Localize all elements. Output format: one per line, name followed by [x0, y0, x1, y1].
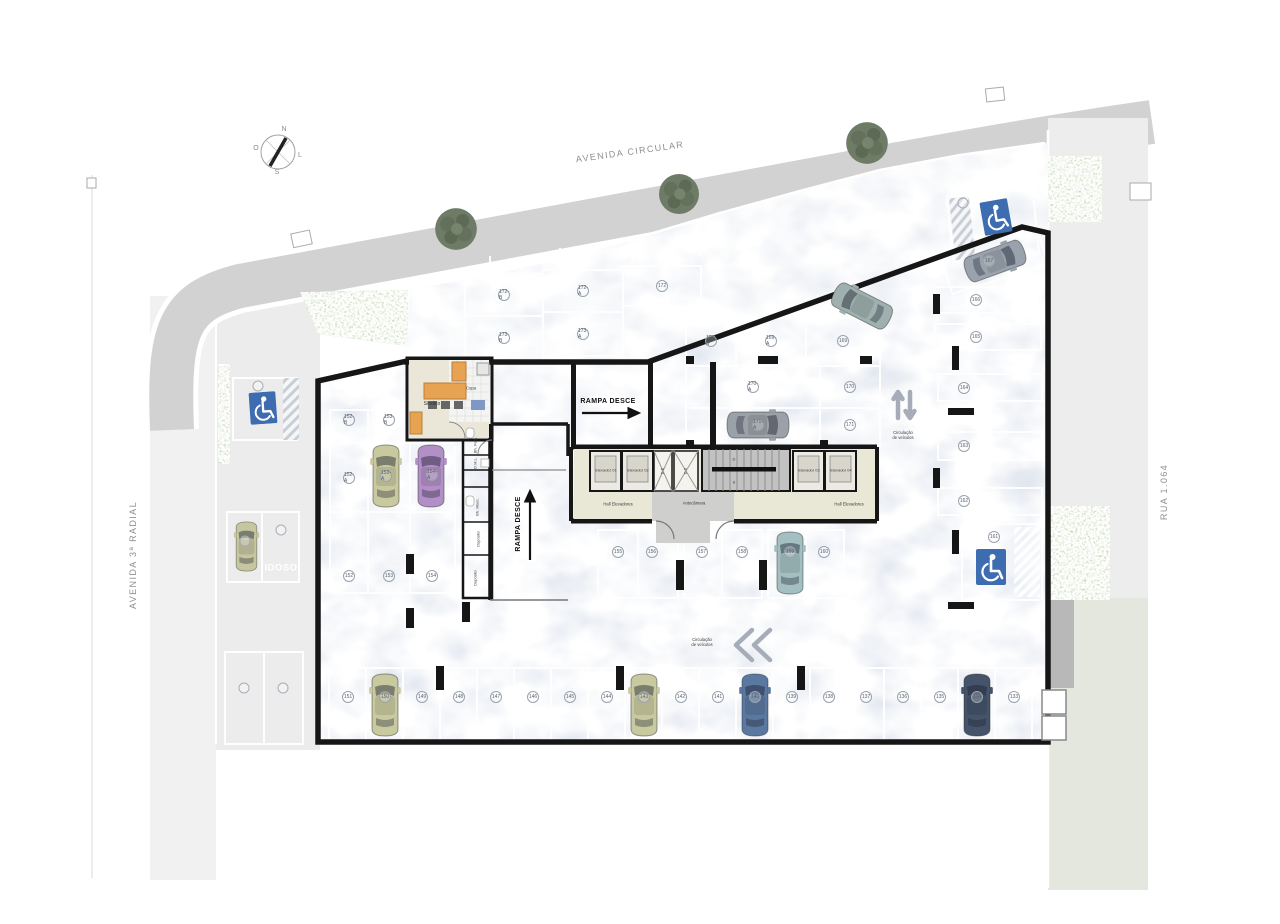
room-label-dml: D.M.L.: [474, 457, 479, 469]
spot-number: 146: [527, 691, 539, 703]
spot-number: 137: [860, 691, 872, 703]
spot-number: 154-A: [426, 469, 438, 481]
wheelchair-icon: [976, 549, 1006, 585]
site-plan-svg: [0, 0, 1280, 924]
spot-number: 169-A: [765, 335, 777, 347]
spot-number: 170-A: [747, 381, 759, 393]
idoso-label: IDOSO: [264, 564, 297, 575]
spot-number: 156: [646, 546, 658, 558]
room-label-sindico: Síndico: [424, 402, 441, 408]
hall-elevadores-label-1: Hall Elevadores: [603, 503, 632, 508]
spot-number: 135: [934, 691, 946, 703]
spot-number: 154: [426, 570, 438, 582]
room-label-copa: Copa: [466, 387, 476, 392]
elevator-02-label: Elevador 02: [627, 469, 648, 474]
spot-number: 162: [958, 495, 970, 507]
street-label-rua-1064: RUA 1.064: [1159, 464, 1169, 520]
spot-number: 163: [958, 440, 970, 452]
spot-number: 155: [612, 546, 624, 558]
room-label-deposito-2: Depósito: [474, 570, 479, 586]
room-label-bh-fem: Bh. Fem.: [474, 437, 479, 453]
spot-number: 170: [844, 381, 856, 393]
spot-number: 172: [656, 280, 668, 292]
elevator-03-label: Elevador 03: [798, 469, 819, 474]
room-label-deposito-1: Depósito: [477, 531, 482, 547]
antecamara-label: Antecâmara: [683, 502, 706, 507]
spot-number: 145: [564, 691, 576, 703]
compass-south: S: [275, 169, 280, 177]
spot-number: 153-A: [380, 470, 392, 482]
spot-marker: [239, 683, 250, 694]
room-label-bh-masc: Bh. Masc.: [476, 498, 481, 516]
spot-number: 157: [696, 546, 708, 558]
spot-number: 160: [818, 546, 830, 558]
spot-number: 147: [490, 691, 502, 703]
spot-number: 151: [342, 691, 354, 703]
spot-number: 150: [379, 691, 391, 703]
duct-ds-label: D.S: [684, 468, 689, 475]
compass-west: O: [253, 145, 258, 153]
spot-number: 172-B: [498, 289, 510, 301]
tree-icon: [435, 208, 477, 250]
spot-number: 161: [988, 531, 1000, 543]
spot-number: 136: [897, 691, 909, 703]
spot-number: 148: [453, 691, 465, 703]
spot-number: 164: [958, 382, 970, 394]
compass-north: N: [281, 126, 286, 134]
spot-number: 165: [970, 331, 982, 343]
spot-number: 167: [983, 255, 995, 267]
stair-up-marker: S: [733, 481, 736, 486]
ramp-down-label-1: RAMPA DESCE: [580, 398, 635, 406]
tree-icon: [659, 174, 699, 214]
spot-number: 158: [736, 546, 748, 558]
spot-marker: [278, 683, 289, 694]
right-street: [1048, 118, 1148, 890]
spot-number: 152-A: [343, 472, 355, 484]
spot-marker: [958, 198, 969, 209]
spot-number: 152: [343, 570, 355, 582]
circulation-label-right: Circulação de veículos: [892, 431, 913, 441]
wheelchair-icon: [979, 198, 1012, 236]
spot-number: 171: [844, 419, 856, 431]
spot-number: 142: [675, 691, 687, 703]
spot-number: 141: [712, 691, 724, 703]
spot-number: 140: [749, 691, 761, 703]
spot-number: 169: [837, 335, 849, 347]
spot-number: 134: [971, 691, 983, 703]
street-label-avenida-3-radial: AVENIDA 3ª RADIAL: [128, 501, 138, 609]
circulation-label-bottom: Circulação de veículos: [691, 638, 712, 648]
tree-icon: [846, 122, 888, 164]
spot-number: 153: [383, 570, 395, 582]
spot-marker: [240, 536, 251, 547]
spot-marker: [276, 525, 287, 536]
parking-floor-plan: AVENIDA CIRCULAR AVENIDA 3ª RADIAL RUA 1…: [0, 0, 1280, 924]
spot-number: 166: [970, 294, 982, 306]
spot-number: 143: [638, 691, 650, 703]
spot-number: 149: [416, 691, 428, 703]
elevator-01-label: Elevador 01: [595, 469, 616, 474]
spot-number: 159: [784, 546, 796, 558]
spot-number: 144: [601, 691, 613, 703]
spot-number: 173-B: [498, 332, 510, 344]
spot-number: 169-B: [705, 335, 717, 347]
spot-number: 171-A: [752, 419, 764, 431]
spot-number: 152-B: [343, 414, 355, 426]
spot-number: 138: [823, 691, 835, 703]
compass-rose: [261, 135, 295, 169]
stair-down-marker: D: [733, 458, 736, 463]
duct-de-label: D.E: [661, 468, 666, 475]
wheelchair-icon: [249, 391, 278, 425]
spot-number: 153-B: [383, 414, 395, 426]
spot-marker: [253, 381, 264, 392]
compass-east: L: [298, 152, 302, 160]
elevator-04-label: Elevador 04: [830, 469, 851, 474]
spot-number: 172-A: [577, 285, 589, 297]
spot-number: 173-A: [577, 328, 589, 340]
spot-number: 139: [786, 691, 798, 703]
spot-number: 133: [1008, 691, 1020, 703]
ramp-down-label-2: RAMPA DESCE: [515, 496, 523, 551]
hall-elevadores-label-2: Hall Elevadores: [834, 503, 863, 508]
